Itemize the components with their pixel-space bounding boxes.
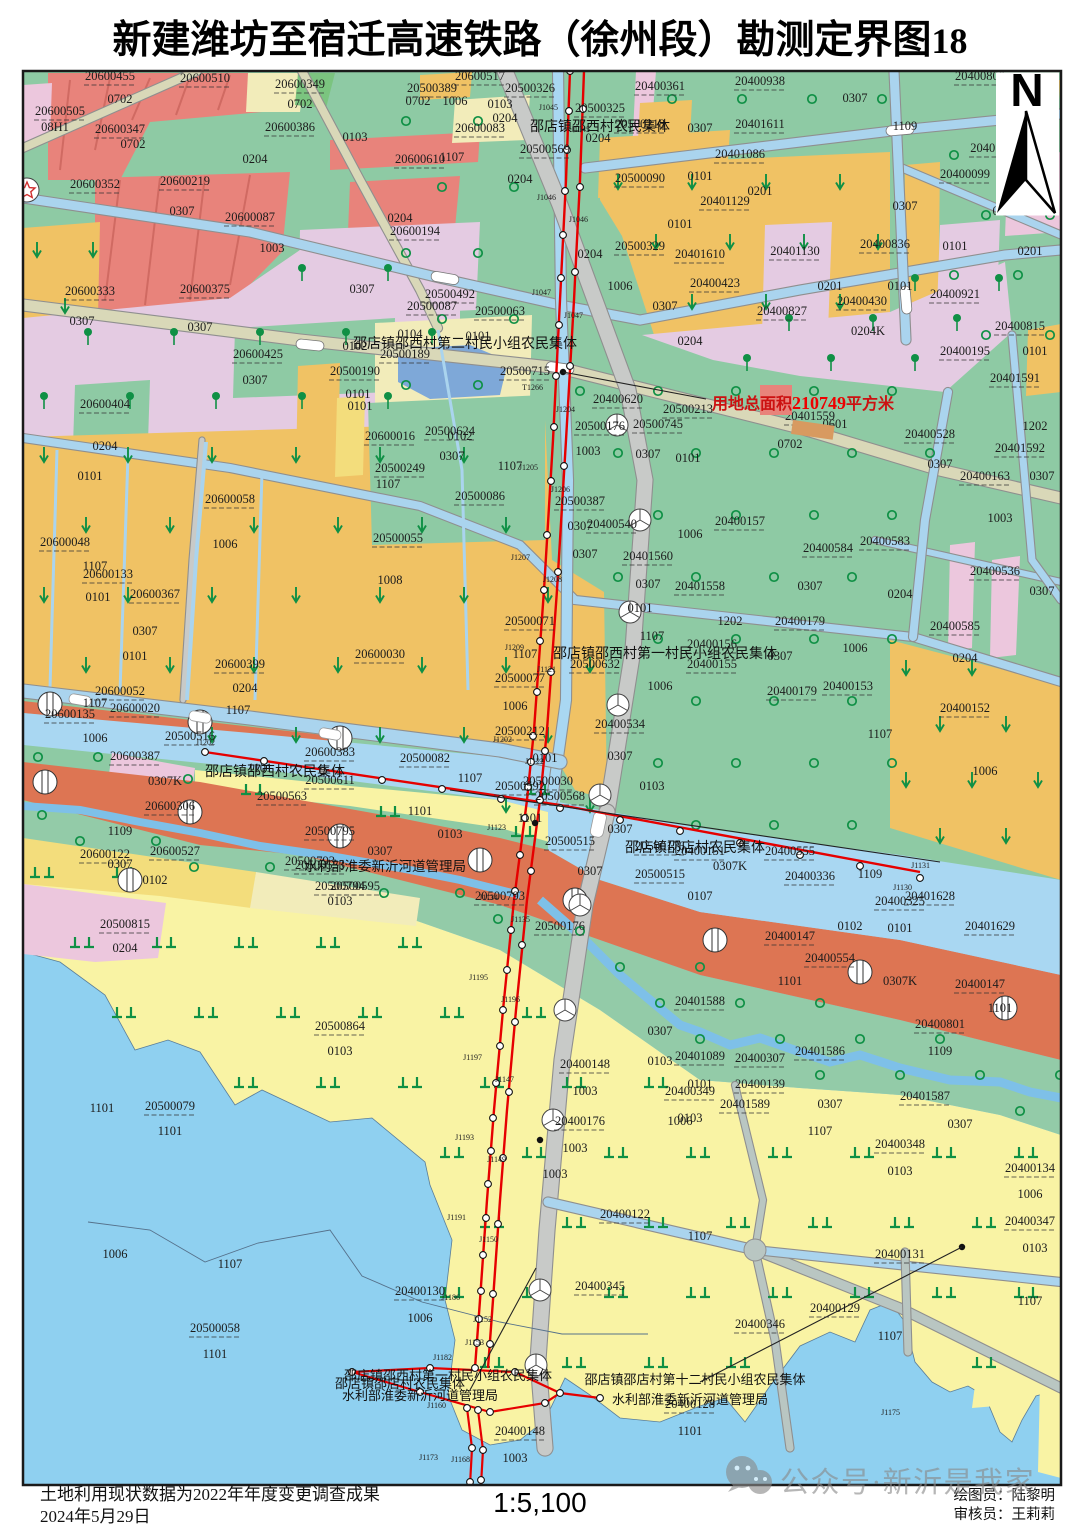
svg-text:1107: 1107 — [640, 629, 665, 643]
svg-text:水利部淮委新沂河道管理局: 水利部淮委新沂河道管理局 — [304, 859, 466, 874]
svg-text:0307: 0307 — [568, 519, 593, 533]
svg-text:20401591: 20401591 — [990, 371, 1040, 385]
svg-text:1003: 1003 — [260, 241, 285, 255]
svg-text:1101: 1101 — [988, 1001, 1013, 1015]
svg-text:20400179: 20400179 — [767, 684, 817, 698]
svg-text:1006: 1006 — [678, 527, 703, 541]
svg-text:1109: 1109 — [108, 824, 133, 838]
svg-text:0101: 0101 — [676, 451, 701, 465]
svg-text:20600383: 20600383 — [305, 745, 355, 759]
svg-text:20500249: 20500249 — [375, 461, 425, 475]
svg-text:0103: 0103 — [438, 827, 463, 841]
svg-text:邵店镇邵店村第十二村民小组农民集体: 邵店镇邵店村第十二村民小组农民集体 — [584, 1372, 805, 1387]
svg-text:20500325: 20500325 — [575, 101, 625, 115]
svg-text:J1046: J1046 — [537, 193, 556, 202]
svg-text:2024年5月29日: 2024年5月29日 — [40, 1507, 151, 1526]
svg-text:20600333: 20600333 — [65, 284, 115, 298]
svg-text:0103: 0103 — [488, 97, 513, 111]
svg-text:0307: 0307 — [636, 447, 661, 461]
svg-text:1101: 1101 — [778, 974, 803, 988]
svg-text:0307: 0307 — [608, 749, 633, 763]
svg-text:0101: 0101 — [1023, 344, 1048, 358]
svg-text:20401588: 20401588 — [675, 994, 725, 1008]
svg-text:1107: 1107 — [440, 150, 465, 164]
svg-text:20400430: 20400430 — [837, 294, 887, 308]
svg-text:1006: 1006 — [83, 731, 108, 745]
svg-text:20400176: 20400176 — [555, 1114, 605, 1128]
svg-text:0307: 0307 — [70, 314, 95, 328]
svg-text:J1153: J1153 — [465, 1338, 484, 1347]
svg-text:0103: 0103 — [640, 779, 665, 793]
svg-text:20400540: 20400540 — [587, 517, 637, 531]
svg-text:20401592: 20401592 — [995, 441, 1045, 455]
svg-text:1006: 1006 — [648, 679, 673, 693]
svg-text:水利部淮委新沂河道管理局: 水利部淮委新沂河道管理局 — [342, 1388, 498, 1403]
svg-text:J1175: J1175 — [881, 1408, 900, 1417]
svg-text:0204: 0204 — [508, 172, 534, 186]
svg-text:1:5,100: 1:5,100 — [493, 1487, 586, 1518]
svg-text:0702: 0702 — [108, 92, 133, 106]
svg-text:20600349: 20600349 — [275, 77, 325, 91]
svg-text:0101: 0101 — [348, 399, 373, 413]
svg-text:1003: 1003 — [503, 1451, 528, 1465]
svg-text:20400336: 20400336 — [785, 869, 835, 883]
svg-text:20400153: 20400153 — [823, 679, 873, 693]
svg-text:0307: 0307 — [843, 91, 868, 105]
svg-text:0204: 0204 — [93, 439, 119, 453]
svg-text:1003: 1003 — [543, 1167, 568, 1181]
svg-text:20500326: 20500326 — [505, 81, 555, 95]
svg-text:20500516: 20500516 — [165, 729, 215, 743]
svg-text:20401611: 20401611 — [735, 117, 785, 131]
svg-text:0307: 0307 — [928, 457, 953, 471]
svg-text:20500387: 20500387 — [555, 494, 605, 508]
svg-text:20400122: 20400122 — [600, 1207, 650, 1221]
svg-text:0101: 0101 — [668, 217, 693, 231]
svg-text:20600527: 20600527 — [150, 844, 200, 858]
svg-text:0204: 0204 — [493, 111, 519, 125]
svg-text:0201: 0201 — [1018, 244, 1043, 258]
svg-text:20600386: 20600386 — [265, 120, 315, 134]
svg-text:0307: 0307 — [440, 449, 465, 463]
svg-text:20400131: 20400131 — [875, 1247, 925, 1261]
svg-text:0702: 0702 — [406, 94, 431, 108]
svg-text:1006: 1006 — [443, 94, 468, 108]
svg-text:20500515: 20500515 — [545, 834, 595, 848]
svg-text:0307: 0307 — [893, 199, 918, 213]
svg-text:1107: 1107 — [498, 459, 523, 473]
svg-text:J1196: J1196 — [501, 995, 520, 1004]
svg-text:20500071: 20500071 — [505, 614, 555, 628]
svg-text:1202: 1202 — [718, 614, 743, 628]
svg-text:1109: 1109 — [858, 867, 883, 881]
svg-text:20400361: 20400361 — [635, 79, 685, 93]
svg-text:1101: 1101 — [203, 1347, 228, 1361]
svg-text:20500793: 20500793 — [475, 889, 525, 903]
svg-text:20500058: 20500058 — [190, 1321, 240, 1335]
svg-text:J1152: J1152 — [473, 1315, 492, 1324]
svg-text:0307: 0307 — [608, 822, 633, 836]
svg-text:0307: 0307 — [578, 864, 603, 878]
svg-text:20400346: 20400346 — [735, 1317, 785, 1331]
svg-text:20400152: 20400152 — [940, 701, 990, 715]
svg-text:20400585: 20400585 — [930, 619, 980, 633]
svg-text:0307: 0307 — [188, 320, 213, 334]
svg-text:0307: 0307 — [243, 373, 268, 387]
svg-text:1101: 1101 — [678, 1424, 703, 1438]
svg-text:20600020: 20600020 — [110, 701, 160, 715]
svg-text:20400583: 20400583 — [860, 534, 910, 548]
svg-text:新建潍坊至宿迁高速铁路（徐州段）勘测定界图18: 新建潍坊至宿迁高速铁路（徐州段）勘测定界图18 — [112, 19, 967, 62]
svg-text:T1266: T1266 — [522, 383, 543, 392]
svg-text:20500329: 20500329 — [615, 239, 665, 253]
svg-text:20500086: 20500086 — [455, 489, 505, 503]
svg-text:20400347: 20400347 — [1005, 1214, 1055, 1228]
svg-text:0102: 0102 — [143, 873, 168, 887]
svg-text:20401129: 20401129 — [700, 194, 750, 208]
svg-text:20600347: 20600347 — [95, 122, 145, 136]
svg-text:20400815: 20400815 — [995, 319, 1045, 333]
svg-text:20600087: 20600087 — [225, 210, 275, 224]
svg-text:20400147: 20400147 — [955, 977, 1005, 991]
svg-text:20500624: 20500624 — [425, 424, 476, 438]
svg-text:0307K: 0307K — [883, 974, 917, 988]
svg-text:20400307: 20400307 — [735, 1051, 785, 1065]
svg-text:20400148: 20400148 — [560, 1057, 610, 1071]
svg-text:J1045: J1045 — [539, 103, 558, 112]
svg-text:20500563: 20500563 — [257, 789, 307, 803]
svg-text:J1135: J1135 — [511, 915, 530, 924]
svg-text:20400528: 20400528 — [905, 427, 955, 441]
svg-text:20500079: 20500079 — [145, 1099, 195, 1113]
svg-text:1003: 1003 — [563, 1141, 588, 1155]
svg-text:J1149: J1149 — [487, 1155, 506, 1164]
svg-text:1101: 1101 — [158, 1124, 183, 1138]
svg-text:20401558: 20401558 — [675, 579, 725, 593]
svg-text:1006: 1006 — [1018, 1187, 1043, 1201]
svg-text:20400099: 20400099 — [940, 167, 990, 181]
svg-text:0103: 0103 — [1023, 1241, 1048, 1255]
svg-text:20400195: 20400195 — [940, 344, 990, 358]
svg-text:J1047: J1047 — [564, 311, 583, 320]
svg-text:20400148: 20400148 — [495, 1424, 545, 1438]
svg-text:0101: 0101 — [628, 601, 653, 615]
svg-text:20400349: 20400349 — [665, 1084, 715, 1098]
svg-text:20500795: 20500795 — [305, 824, 355, 838]
svg-text:0307: 0307 — [1030, 584, 1055, 598]
svg-text:20500212: 20500212 — [495, 724, 545, 738]
svg-text:20600122: 20600122 — [80, 847, 130, 861]
svg-text:0102: 0102 — [838, 919, 863, 933]
svg-text:J1193: J1193 — [455, 1133, 474, 1142]
svg-text:20400554: 20400554 — [805, 951, 856, 965]
svg-text:J1204: J1204 — [556, 405, 575, 414]
svg-text:0101: 0101 — [888, 921, 913, 935]
svg-text:20401089: 20401089 — [675, 1049, 725, 1063]
svg-text:用地总面积210749平方米: 用地总面积210749平方米 — [712, 393, 895, 413]
svg-text:20600425: 20600425 — [233, 347, 283, 361]
svg-text:20400938: 20400938 — [735, 74, 785, 88]
svg-text:0702: 0702 — [778, 437, 803, 451]
svg-text:20600505: 20600505 — [35, 104, 85, 118]
svg-text:J1147: J1147 — [495, 1075, 514, 1084]
svg-text:N: N — [1010, 64, 1043, 116]
svg-text:20401629: 20401629 — [965, 919, 1015, 933]
svg-text:20400147: 20400147 — [765, 929, 815, 943]
svg-text:0307: 0307 — [798, 579, 823, 593]
svg-text:20500568: 20500568 — [535, 789, 585, 803]
svg-text:土地利用现状数据为2022年年度变更调查成果: 土地利用现状数据为2022年年度变更调查成果 — [40, 1485, 380, 1504]
svg-text:20401587: 20401587 — [900, 1089, 950, 1103]
svg-text:20400423: 20400423 — [690, 276, 740, 290]
svg-text:20400555: 20400555 — [765, 844, 815, 858]
svg-text:0201: 0201 — [818, 279, 843, 293]
svg-text:1006: 1006 — [973, 764, 998, 778]
svg-text:0307: 0307 — [688, 121, 713, 135]
svg-text:20400801: 20400801 — [915, 1017, 965, 1031]
svg-text:1006: 1006 — [103, 1247, 128, 1261]
svg-text:0307K: 0307K — [148, 774, 182, 788]
svg-text:20401610: 20401610 — [675, 247, 725, 261]
svg-text:0103: 0103 — [678, 1111, 703, 1125]
svg-text:08H1: 08H1 — [41, 120, 69, 134]
svg-text:1107: 1107 — [513, 647, 538, 661]
svg-text:20600194: 20600194 — [390, 224, 441, 238]
svg-text:20401086: 20401086 — [715, 147, 765, 161]
svg-text:20500864: 20500864 — [315, 1019, 366, 1033]
svg-text:1006: 1006 — [408, 1311, 433, 1325]
svg-text:J1123: J1123 — [487, 823, 506, 832]
svg-text:1107: 1107 — [458, 771, 483, 785]
svg-text:20600610: 20600610 — [395, 152, 445, 166]
svg-text:J1150: J1150 — [479, 1235, 498, 1244]
svg-text:20401560: 20401560 — [623, 549, 673, 563]
svg-text:20500090: 20500090 — [615, 171, 665, 185]
svg-text:1107: 1107 — [218, 1257, 243, 1271]
svg-text:J1195: J1195 — [469, 973, 488, 982]
svg-text:0103: 0103 — [888, 1164, 913, 1178]
svg-text:20600133: 20600133 — [83, 567, 133, 581]
svg-text:0307: 0307 — [170, 204, 195, 218]
svg-text:20600030: 20600030 — [355, 647, 405, 661]
svg-text:20400620: 20400620 — [593, 392, 643, 406]
svg-text:20500213: 20500213 — [663, 402, 713, 416]
svg-text:0101: 0101 — [86, 590, 111, 604]
svg-text:20500082: 20500082 — [400, 751, 450, 765]
svg-text:20500569: 20500569 — [520, 142, 570, 156]
svg-text:1006: 1006 — [503, 699, 528, 713]
svg-text:1006: 1006 — [843, 641, 868, 655]
svg-text:1107: 1107 — [376, 477, 401, 491]
svg-text:邵店镇邵西村第一村民小组农民集体: 邵店镇邵西村第一村民小组农民集体 — [553, 645, 777, 662]
svg-text:0204K: 0204K — [851, 324, 885, 338]
svg-text:J1046: J1046 — [569, 215, 588, 224]
svg-text:J1168: J1168 — [451, 1455, 470, 1464]
svg-text:20500595: 20500595 — [330, 879, 380, 893]
svg-text:J1182: J1182 — [433, 1353, 452, 1362]
svg-text:20600016: 20600016 — [365, 429, 415, 443]
svg-text:0307: 0307 — [133, 624, 158, 638]
svg-text:20400534: 20400534 — [595, 717, 646, 731]
svg-text:20400584: 20400584 — [803, 541, 854, 555]
svg-text:20500087: 20500087 — [407, 299, 457, 313]
svg-text:20400348: 20400348 — [875, 1137, 925, 1151]
svg-text:20500389: 20500389 — [407, 81, 457, 95]
svg-text:0101: 0101 — [688, 169, 713, 183]
svg-text:J1173: J1173 — [419, 1453, 438, 1462]
svg-text:20401586: 20401586 — [795, 1044, 845, 1058]
svg-text:0204: 0204 — [953, 651, 979, 665]
svg-text:20400836: 20400836 — [860, 237, 910, 251]
svg-text:1202: 1202 — [1023, 419, 1048, 433]
svg-text:1101: 1101 — [408, 804, 433, 818]
svg-text:0702: 0702 — [121, 137, 146, 151]
svg-text:0201: 0201 — [748, 184, 773, 198]
svg-text:邵店镇邵西村第二村民小组农民集体: 邵店镇邵西村第二村民小组农民集体 — [353, 335, 577, 352]
svg-text:20500715: 20500715 — [500, 364, 550, 378]
svg-text:邵店镇邵西村农民集体: 邵店镇邵西村农民集体 — [205, 763, 345, 780]
svg-text:1107: 1107 — [808, 1124, 833, 1138]
svg-text:20600387: 20600387 — [110, 749, 160, 763]
svg-text:J1191: J1191 — [447, 1213, 466, 1222]
svg-text:J1197: J1197 — [463, 1053, 482, 1062]
svg-text:J1131: J1131 — [911, 861, 930, 870]
svg-text:20500815: 20500815 — [100, 917, 150, 931]
svg-text:20400827: 20400827 — [757, 304, 807, 318]
svg-text:20400139: 20400139 — [735, 1077, 785, 1091]
svg-text:0307K: 0307K — [713, 859, 747, 873]
svg-text:0103: 0103 — [328, 894, 353, 908]
svg-text:1107: 1107 — [688, 1229, 713, 1243]
svg-text:20600352: 20600352 — [70, 177, 120, 191]
svg-text:1107: 1107 — [226, 703, 251, 717]
svg-text:公众号·新沂是我家: 公众号·新沂是我家 — [780, 1466, 1035, 1499]
svg-text:1107: 1107 — [868, 727, 893, 741]
svg-text:20600219: 20600219 — [160, 174, 210, 188]
svg-text:0107: 0107 — [688, 889, 713, 903]
svg-text:20500063: 20500063 — [475, 304, 525, 318]
svg-text:0307: 0307 — [350, 282, 375, 296]
svg-text:20400536: 20400536 — [970, 564, 1020, 578]
svg-text:0101: 0101 — [123, 649, 148, 663]
svg-text:1107: 1107 — [83, 696, 108, 710]
svg-text:邵店镇邵西村农民集体: 邵店镇邵西村农民集体 — [530, 118, 670, 135]
svg-text:J1207: J1207 — [511, 553, 530, 562]
svg-text:J1206: J1206 — [551, 485, 570, 494]
svg-text:20401589: 20401589 — [720, 1097, 770, 1111]
svg-text:20600306: 20600306 — [145, 799, 195, 813]
svg-text:20500190: 20500190 — [330, 364, 380, 378]
svg-text:20400179: 20400179 — [775, 614, 825, 628]
svg-text:审核员：王莉莉: 审核员：王莉莉 — [954, 1506, 1056, 1523]
svg-text:0307: 0307 — [368, 844, 393, 858]
svg-text:J1208: J1208 — [543, 575, 562, 584]
svg-text:20600058: 20600058 — [205, 492, 255, 506]
svg-text:1003: 1003 — [573, 1084, 598, 1098]
svg-text:1006: 1006 — [608, 279, 633, 293]
svg-text:0103: 0103 — [648, 1054, 673, 1068]
svg-text:0307: 0307 — [573, 547, 598, 561]
svg-text:1101: 1101 — [518, 811, 543, 825]
svg-text:1008: 1008 — [378, 573, 403, 587]
svg-text:20400130: 20400130 — [395, 1284, 445, 1298]
svg-text:0307: 0307 — [653, 299, 678, 313]
svg-text:20400921: 20400921 — [930, 287, 980, 301]
svg-text:20400157: 20400157 — [715, 514, 765, 528]
svg-text:水利部淮委新沂河道管理局: 水利部淮委新沂河道管理局 — [612, 1392, 768, 1407]
svg-text:1006: 1006 — [213, 537, 238, 551]
svg-text:0307: 0307 — [1030, 469, 1055, 483]
svg-text:0101: 0101 — [943, 239, 968, 253]
svg-text:1101: 1101 — [90, 1101, 115, 1115]
svg-text:0307: 0307 — [648, 1024, 673, 1038]
svg-text:邵店镇邵店村农民集体: 邵店镇邵店村农民集体 — [625, 839, 765, 856]
svg-text:20400129: 20400129 — [810, 1301, 860, 1315]
svg-text:1109: 1109 — [928, 1044, 953, 1058]
svg-text:1003: 1003 — [988, 511, 1013, 525]
svg-text:20500055: 20500055 — [373, 531, 423, 545]
svg-text:20500176: 20500176 — [535, 919, 585, 933]
svg-text:0103: 0103 — [328, 1044, 353, 1058]
svg-text:0204: 0204 — [243, 152, 269, 166]
svg-text:0204: 0204 — [113, 941, 139, 955]
svg-text:20500745: 20500745 — [633, 417, 683, 431]
svg-text:20600404: 20600404 — [80, 397, 131, 411]
svg-text:20400345: 20400345 — [575, 1279, 625, 1293]
svg-text:0307: 0307 — [818, 1097, 843, 1111]
svg-text:0101: 0101 — [346, 387, 371, 401]
svg-text:0204: 0204 — [233, 681, 259, 695]
svg-text:0204: 0204 — [578, 247, 604, 261]
svg-text:1003: 1003 — [576, 444, 601, 458]
svg-text:0307: 0307 — [636, 577, 661, 591]
svg-text:20500515: 20500515 — [635, 867, 685, 881]
svg-text:0307: 0307 — [948, 1117, 973, 1131]
svg-text:20600510: 20600510 — [180, 71, 230, 85]
svg-text:20500176: 20500176 — [575, 419, 625, 433]
svg-text:1107: 1107 — [1018, 1294, 1043, 1308]
svg-text:0101: 0101 — [533, 751, 558, 765]
svg-text:20401628: 20401628 — [905, 889, 955, 903]
svg-text:0101: 0101 — [78, 469, 103, 483]
svg-text:20401130: 20401130 — [770, 244, 820, 258]
svg-text:0204: 0204 — [888, 587, 914, 601]
svg-text:0101: 0101 — [888, 279, 913, 293]
svg-text:20400163: 20400163 — [960, 469, 1010, 483]
svg-text:1109: 1109 — [893, 119, 918, 133]
svg-text:20500077: 20500077 — [495, 671, 545, 685]
svg-text:0103: 0103 — [343, 130, 368, 144]
svg-text:20600375: 20600375 — [180, 282, 230, 296]
svg-text:0702: 0702 — [288, 97, 313, 111]
svg-text:0204: 0204 — [388, 211, 414, 225]
svg-text:1107: 1107 — [878, 1329, 903, 1343]
svg-text:0204: 0204 — [678, 334, 704, 348]
svg-text:20600367: 20600367 — [130, 587, 180, 601]
svg-text:20600048: 20600048 — [40, 535, 90, 549]
svg-text:20600399: 20600399 — [215, 657, 265, 671]
svg-text:J1047: J1047 — [532, 288, 551, 297]
svg-text:20400134: 20400134 — [1005, 1161, 1056, 1175]
